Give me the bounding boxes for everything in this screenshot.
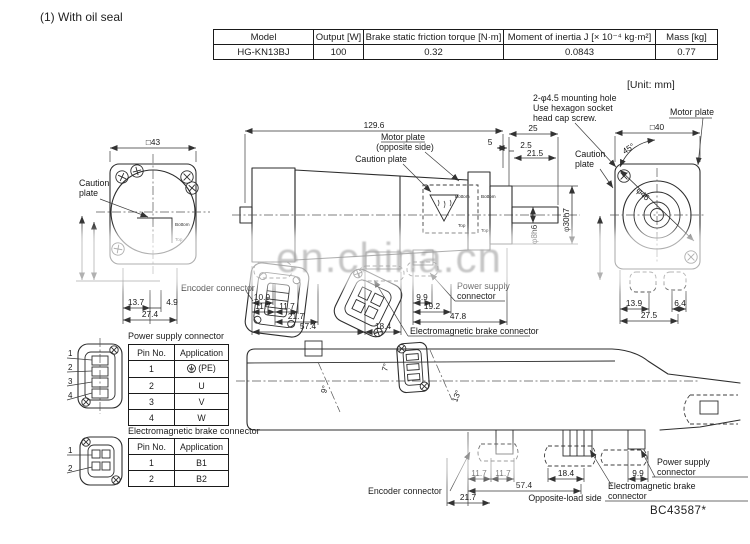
dim-rear-width: □40 bbox=[650, 122, 665, 132]
svg-text:connector: connector bbox=[457, 291, 496, 301]
dim-bottom-a: 11.7 bbox=[471, 468, 487, 478]
power-header-pin: Pin No. bbox=[129, 345, 175, 361]
brake-app-b1: B1 bbox=[175, 455, 229, 471]
brake-connector-title: Electromagnetic brake connector bbox=[128, 426, 260, 436]
dim-side-rear-shaft-len: 21.5 bbox=[527, 148, 544, 158]
svg-text:connector: connector bbox=[657, 467, 696, 477]
dim-rear-b: 6.4 bbox=[674, 298, 686, 308]
dim-bottom-angle-pwr: 7° bbox=[380, 362, 391, 372]
dim-side-spigot-dia: φ30h7 bbox=[561, 208, 571, 232]
svg-text:Top: Top bbox=[481, 228, 489, 233]
front-bottom-label: Bottom bbox=[175, 222, 190, 227]
dim-side-pwr-b: 19.2 bbox=[424, 301, 441, 311]
svg-text:plate: plate bbox=[575, 159, 594, 169]
dim-bottom-angle-enc: 9° bbox=[319, 384, 330, 394]
brake-connector-diagram: 1 2 bbox=[67, 437, 122, 485]
doc-number: BC43587* bbox=[650, 505, 706, 517]
brake-connector-table: Pin No. Application 1 B1 2 B2 bbox=[128, 438, 229, 487]
dim-side-shaft-dia: φ8h6 bbox=[529, 224, 539, 244]
table-row: 2 U bbox=[129, 378, 229, 394]
dim-front-c: 27.4 bbox=[142, 309, 159, 319]
dim-bottom-c: 18.4 bbox=[558, 468, 575, 478]
front-top-label: Top bbox=[175, 237, 183, 242]
side-motor-plate-label: Motor plate bbox=[381, 132, 425, 142]
svg-text:connector: connector bbox=[608, 491, 647, 501]
table-row: 2 B2 bbox=[129, 471, 229, 487]
front-view: □43 Bottom Top Caution plate 13.7 bbox=[76, 137, 210, 324]
dim-bottom-angle-brk: 13° bbox=[450, 389, 463, 403]
power-pin-2: 2 bbox=[68, 363, 73, 372]
svg-text:head cap screw.: head cap screw. bbox=[533, 113, 597, 123]
dim-side-rear-total: 25 bbox=[528, 123, 538, 133]
table-row: 1 B1 bbox=[129, 455, 229, 471]
power-app-w: W bbox=[175, 410, 229, 426]
dim-side-enc-a: 11.7 bbox=[255, 301, 271, 311]
side-brake-connector-label: Electromagnetic brake connector bbox=[410, 326, 539, 336]
opposite-load-side-label: Opposite-load side bbox=[528, 493, 601, 503]
bottom-power-supply-label: Power supply bbox=[657, 457, 710, 467]
power-header-app: Application bbox=[175, 345, 229, 361]
dim-front-width: □43 bbox=[146, 137, 161, 147]
power-app-v: V bbox=[175, 394, 229, 410]
side-caution-plate-label: Caution plate bbox=[355, 154, 407, 164]
table-row: 3 V bbox=[129, 394, 229, 410]
bottom-brake-connector-label: Electromagnetic brake bbox=[608, 481, 696, 491]
power-connector-table: Pin No. Application 1 (PE) 2 U 3 V 4 W bbox=[128, 344, 229, 426]
dim-bottom-b: 11.7 bbox=[495, 468, 511, 478]
brake-app-b2: B2 bbox=[175, 471, 229, 487]
side-power-supply-label: Power supply bbox=[457, 281, 510, 291]
svg-text:Use hexagon socket: Use hexagon socket bbox=[533, 103, 613, 113]
dim-rear-a: 13.9 bbox=[626, 298, 643, 308]
dim-bottom-enc: 21.7 bbox=[460, 492, 477, 502]
power-pin-1: 1 bbox=[68, 349, 73, 358]
side-view: 129.6 Motor plate (opposite side) Cautio… bbox=[181, 120, 580, 336]
table-row: 1 (PE) bbox=[129, 361, 229, 378]
mounting-hole-note: 2-φ4.5 mounting hole bbox=[533, 93, 617, 103]
power-pin-3: 3 bbox=[68, 377, 73, 386]
datasheet-page: (1) With oil seal [Unit: mm] Model Outpu… bbox=[0, 0, 750, 544]
power-connector-title: Power supply connector bbox=[128, 331, 224, 341]
front-caution-plate-label: Caution bbox=[79, 178, 109, 188]
dim-rear-c: 27.5 bbox=[641, 310, 658, 320]
dim-front-a: 13.7 bbox=[128, 297, 145, 307]
power-app-pe: (PE) bbox=[198, 363, 216, 373]
brake-pin-1: 1 bbox=[68, 446, 73, 455]
dim-front-b: 4.9 bbox=[166, 297, 178, 307]
dim-rear-angle: 45° bbox=[620, 141, 636, 156]
dim-side-overall: 129.6 bbox=[364, 120, 385, 130]
power-app-u: U bbox=[175, 378, 229, 394]
side-encoder-connector-label: Encoder connector bbox=[181, 283, 255, 293]
bottom-encoder-connector-label: Encoder connector bbox=[368, 486, 442, 496]
dim-bottom-total: 57.4 bbox=[516, 480, 533, 490]
power-connector-diagram: 1 2 3 4 bbox=[67, 338, 122, 414]
svg-text:Bottom: Bottom bbox=[481, 194, 496, 199]
dim-side-pwr-c: 47.8 bbox=[450, 311, 467, 321]
svg-text:plate: plate bbox=[79, 188, 98, 198]
earth-ground-icon bbox=[187, 363, 196, 377]
dim-side-rear-gap: 5 bbox=[488, 137, 493, 147]
rear-caution-plate-label: Caution bbox=[575, 149, 605, 159]
side-top-label: Top bbox=[458, 223, 466, 228]
table-row: 4 W bbox=[129, 410, 229, 426]
dim-bottom-d: 9.9 bbox=[632, 468, 644, 478]
svg-text:(opposite side): (opposite side) bbox=[376, 142, 434, 152]
brake-header-pin: Pin No. bbox=[129, 439, 175, 455]
dimension-drawing: □43 Bottom Top Caution plate 13.7 bbox=[0, 0, 750, 544]
brake-header-app: Application bbox=[175, 439, 229, 455]
rear-motor-plate-label: Motor plate bbox=[670, 107, 714, 117]
